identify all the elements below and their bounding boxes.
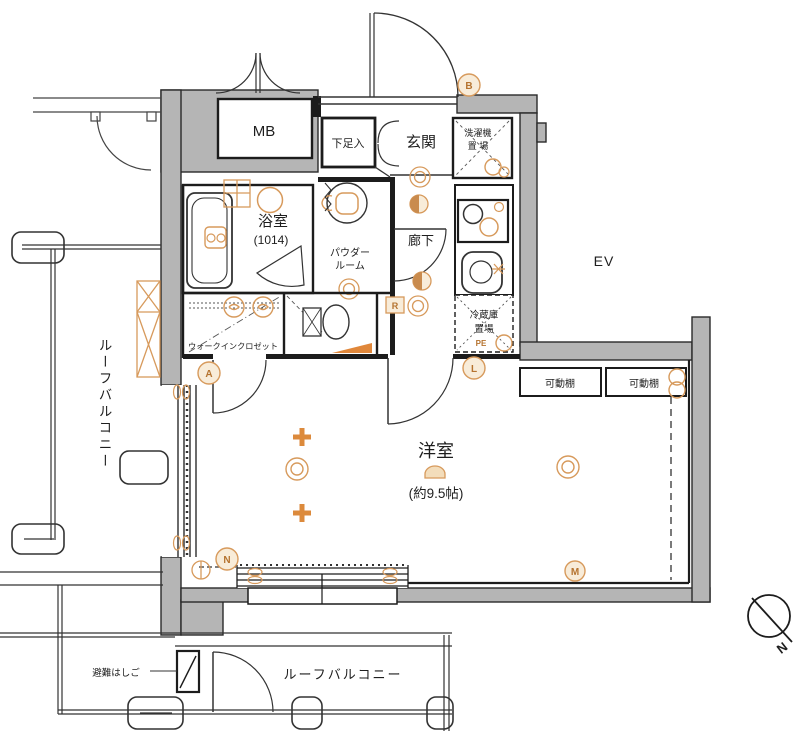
- fridge-space: 冷蔵庫 置場 PE: [455, 295, 513, 352]
- floor-plan-svg: MB 下足入 玄関 洗濯機 置 場: [0, 0, 800, 733]
- label-wic: ウォークインクロゼット: [188, 341, 278, 351]
- label-powder-2: ルーム: [335, 260, 365, 272]
- wall-post-genkan: [313, 96, 321, 117]
- label-shelf-1: 可動棚: [545, 377, 575, 390]
- wall-left-upper: [161, 90, 181, 385]
- marker-ring-room-right: [557, 456, 579, 478]
- marker-cross-1: [293, 428, 311, 446]
- label-laundry-1: 洗濯機: [464, 127, 491, 138]
- svg-text:L: L: [471, 364, 477, 375]
- marker-l: L: [463, 357, 485, 379]
- living-room: 可動棚 可動棚 洋室 (約9.5帖): [199, 360, 689, 583]
- label-elevator: EV: [594, 253, 615, 269]
- laundry-space: 洗濯機 置 場: [453, 118, 512, 178]
- label-fridge-1: 冷蔵庫: [470, 309, 499, 321]
- ac-unit-box: [137, 281, 160, 377]
- marker-n: N: [216, 548, 238, 570]
- genkan: 下足入 玄関: [322, 118, 457, 177]
- wall-ev-bottom: [520, 342, 692, 360]
- label-roof-balcony-left: ルーフバルコニー: [97, 338, 112, 470]
- marker-half-1: [410, 195, 428, 213]
- wall-ev-left: [520, 113, 537, 346]
- svg-text:B: B: [465, 81, 472, 92]
- marker-b: B: [458, 74, 480, 96]
- marker-r: R: [386, 297, 404, 313]
- label-living-1: 洋室: [418, 441, 454, 461]
- living-room-door: [388, 358, 453, 424]
- hanger-icons: [224, 297, 273, 317]
- label-bathroom-1: 浴室: [258, 213, 288, 230]
- marker-phone: [192, 561, 210, 579]
- powder-room: パウダー ルーム: [318, 177, 390, 299]
- label-mb: MB: [253, 123, 276, 140]
- label-hallway: 廊下: [408, 233, 434, 248]
- floor-plan: MB 下足入 玄関 洗濯機 置 場: [0, 0, 800, 733]
- shoe-cabinet-door: [378, 121, 399, 166]
- label-bathroom-2: (1014): [254, 233, 289, 247]
- balcony-post: [12, 232, 64, 263]
- label-roof-balcony-bottom: ルーフバルコニー: [284, 667, 403, 682]
- label-fridge-pe: PE: [476, 339, 487, 348]
- svg-text:M: M: [571, 567, 579, 578]
- wall-left-foot: [181, 600, 223, 635]
- toilet-door-wedge: [332, 343, 372, 353]
- wash-basin: [327, 183, 367, 223]
- wall-right: [692, 317, 710, 602]
- label-powder-1: パウダー: [330, 246, 370, 259]
- exterior-walls: [161, 90, 710, 635]
- label-fridge-2: 置場: [474, 323, 494, 335]
- balcony-post: [292, 697, 322, 729]
- mb-double-doors: [216, 53, 300, 93]
- marker-ring-genkan: [410, 167, 430, 187]
- label-living-2: (約9.5帖): [409, 486, 464, 501]
- genkan-step: [375, 167, 390, 177]
- wic-door: [213, 360, 266, 413]
- neighbor-door-arc: [97, 116, 151, 170]
- marker-half-2: [413, 272, 431, 290]
- ceiling-light-icon: [425, 466, 445, 478]
- svg-text:R: R: [392, 301, 399, 311]
- wall-ev-notch: [537, 123, 546, 142]
- balcony-door: [213, 652, 273, 712]
- bottom-window: [237, 565, 408, 604]
- svg-text:A: A: [205, 369, 212, 380]
- powder-vent-icon: [339, 279, 359, 299]
- entrance-door: [318, 13, 458, 104]
- balcony-post: [120, 451, 168, 484]
- label-entrance: 玄関: [406, 134, 436, 151]
- marker-ring-hall: [408, 296, 428, 316]
- marker-a: A: [198, 362, 220, 384]
- label-laundry-2: 置 場: [468, 140, 489, 151]
- bathroom: 浴室 (1014): [183, 180, 313, 293]
- label-shelf-2: 可動棚: [629, 377, 659, 390]
- label-escape-ladder: 避難はしご: [92, 667, 140, 679]
- marker-m: M: [565, 561, 585, 581]
- wall-left-lower: [161, 557, 181, 635]
- roof-balcony-left: [0, 232, 168, 585]
- svg-text:N: N: [223, 555, 230, 566]
- meter-box: MB: [216, 53, 312, 158]
- marker-cross-2: [293, 504, 311, 522]
- marker-ring-room-left: [286, 458, 308, 480]
- label-shoe-cabinet: 下足入: [332, 138, 365, 150]
- common-corridor: [33, 98, 161, 170]
- wall-top-right: [457, 95, 537, 113]
- compass-north-label: N: [774, 639, 791, 657]
- compass: [748, 595, 792, 642]
- toilet-bowl: [323, 305, 349, 339]
- kitchen: [455, 185, 513, 295]
- entrance-door-arc: [374, 13, 458, 97]
- roof-balcony-bottom: [0, 585, 453, 731]
